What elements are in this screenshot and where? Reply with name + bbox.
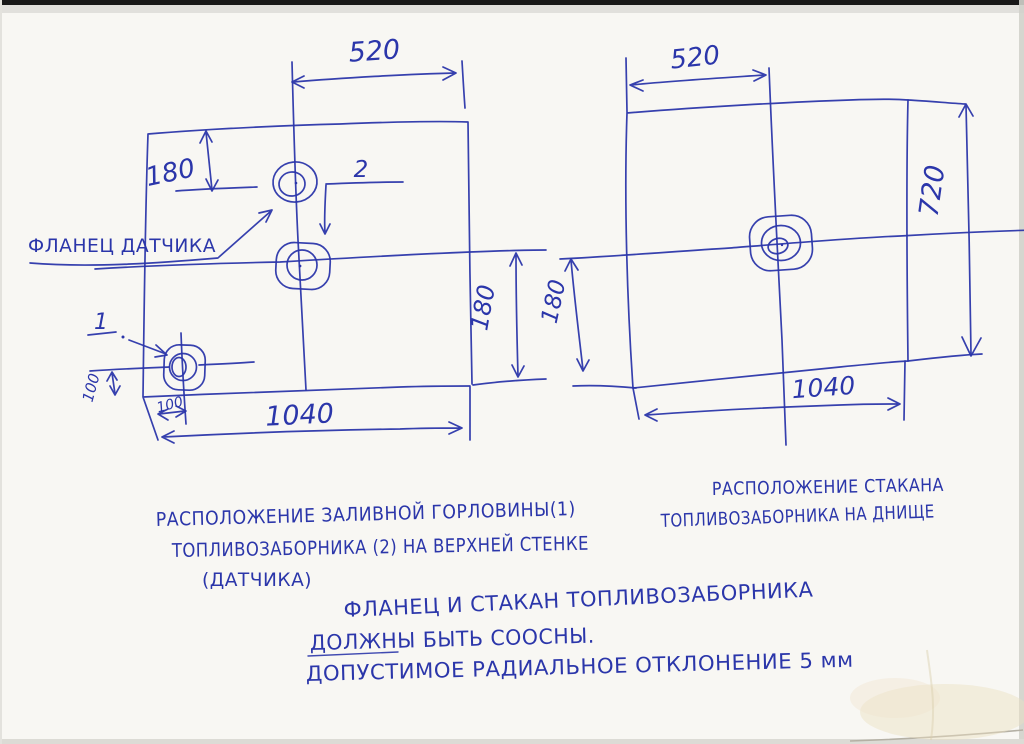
callout-1-leader-dot — [122, 336, 125, 339]
left-caption-line3: (ДАТЧИКА) — [202, 569, 312, 591]
sensor-flange-center-dot — [295, 182, 298, 185]
left-dim-top-width: 520 — [348, 34, 402, 69]
left-centerline — [292, 62, 306, 390]
right-dim-1040-line — [645, 398, 900, 421]
sensor-flange-inner-circle — [278, 171, 306, 198]
sensor-flange-level-line — [176, 187, 257, 191]
scanner-top-edge — [0, 0, 1024, 5]
right-caption-line2: ТОПЛИВОЗАБОРНИКА НА ДНИЩЕ — [660, 501, 935, 532]
paper-stain-small — [850, 678, 940, 718]
note-line2: ДОЛЖНЫ БЫТЬ СООСНЫ. — [310, 624, 596, 655]
note-line1: ФЛАНЕЦ И СТАКАН ТОПЛИВОЗАБОРНИКА — [343, 578, 814, 622]
right-dim-180-line — [565, 259, 636, 388]
callout-1-leader — [88, 332, 167, 357]
right-outline-extensions — [626, 58, 982, 420]
right-edge-shadow — [1019, 0, 1024, 744]
pickup-cup-outer-circle — [748, 214, 814, 272]
right-centerline — [769, 68, 786, 445]
left-caption-line1: РАСПОЛОЖЕНИЕ ЗАЛИВНОЙ ГОРЛОВИНЫ(1) — [156, 497, 576, 531]
left-edge-shadow — [0, 0, 2, 744]
right-caption-line1: РАСПОЛОЖЕНИЕ СТАКАНА — [712, 475, 944, 500]
note-line3: ДОПУСТИМОЕ РАДИАЛЬНОЕ ОТКЛОНЕНИЕ 5 мм — [306, 648, 854, 686]
right-tank-outline — [626, 99, 908, 388]
top-edge-shadow — [0, 5, 1024, 13]
right-view: 520 720 180 1040 РАСПОЛОЖЕНИЕ СТАКАНА ТО… — [537, 41, 1024, 532]
left-dim-bottom-width: 1040 — [264, 398, 334, 433]
sensor-flange-label: ФЛАНЕЦ ДАТЧИКА — [28, 236, 216, 257]
right-dim-top-width: 520 — [669, 41, 722, 76]
left-dim-100v-line — [107, 372, 120, 395]
left-dim-filler-from-edge: 100 — [155, 394, 185, 416]
callout-2-label: 2 — [354, 157, 369, 183]
callout-2-leader — [320, 182, 403, 234]
left-caption-line2: ТОПЛИВОЗАБОРНИКА (2) НА ВЕРХНЕЙ СТЕНКЕ — [171, 532, 589, 562]
scanned-paper-sheet: 520 180 2 ФЛАНЕЦ ДАТЧИКА 1 100 100 1040 … — [0, 0, 1024, 744]
callout-1-label: 1 — [94, 310, 108, 335]
left-dim-left-height: 180 — [143, 153, 198, 193]
left-view: 520 180 2 ФЛАНЕЦ ДАТЧИКА 1 100 100 1040 … — [28, 34, 589, 591]
right-dim-bottom-width: 1040 — [791, 371, 856, 404]
left-dim-520-line — [292, 61, 465, 108]
notes: ФЛАНЕЦ И СТАКАН ТОПЛИВОЗАБОРНИКА ДОЛЖНЫ … — [306, 578, 854, 686]
right-dim-left-height: 180 — [537, 277, 572, 325]
pickup-cup-center-dot — [781, 244, 783, 246]
right-dim-520-line — [630, 70, 766, 91]
pickup-flange-inner-circle — [287, 250, 317, 280]
hand-drawn-technical-sketch: 520 180 2 ФЛАНЕЦ ДАТЧИКА 1 100 100 1040 … — [0, 0, 1024, 744]
left-dim-filler-from-bottom: 100 — [79, 372, 104, 404]
pickup-flange-center-dot — [299, 265, 302, 268]
pickup-flange-outer-circle — [275, 242, 331, 291]
right-horizontal-axis — [560, 230, 1024, 259]
left-dim-180-line — [200, 131, 218, 191]
filler-neck-inner-circle — [172, 358, 186, 377]
right-dim-right-height: 720 — [914, 163, 952, 218]
right-dim-720-line — [959, 104, 981, 356]
